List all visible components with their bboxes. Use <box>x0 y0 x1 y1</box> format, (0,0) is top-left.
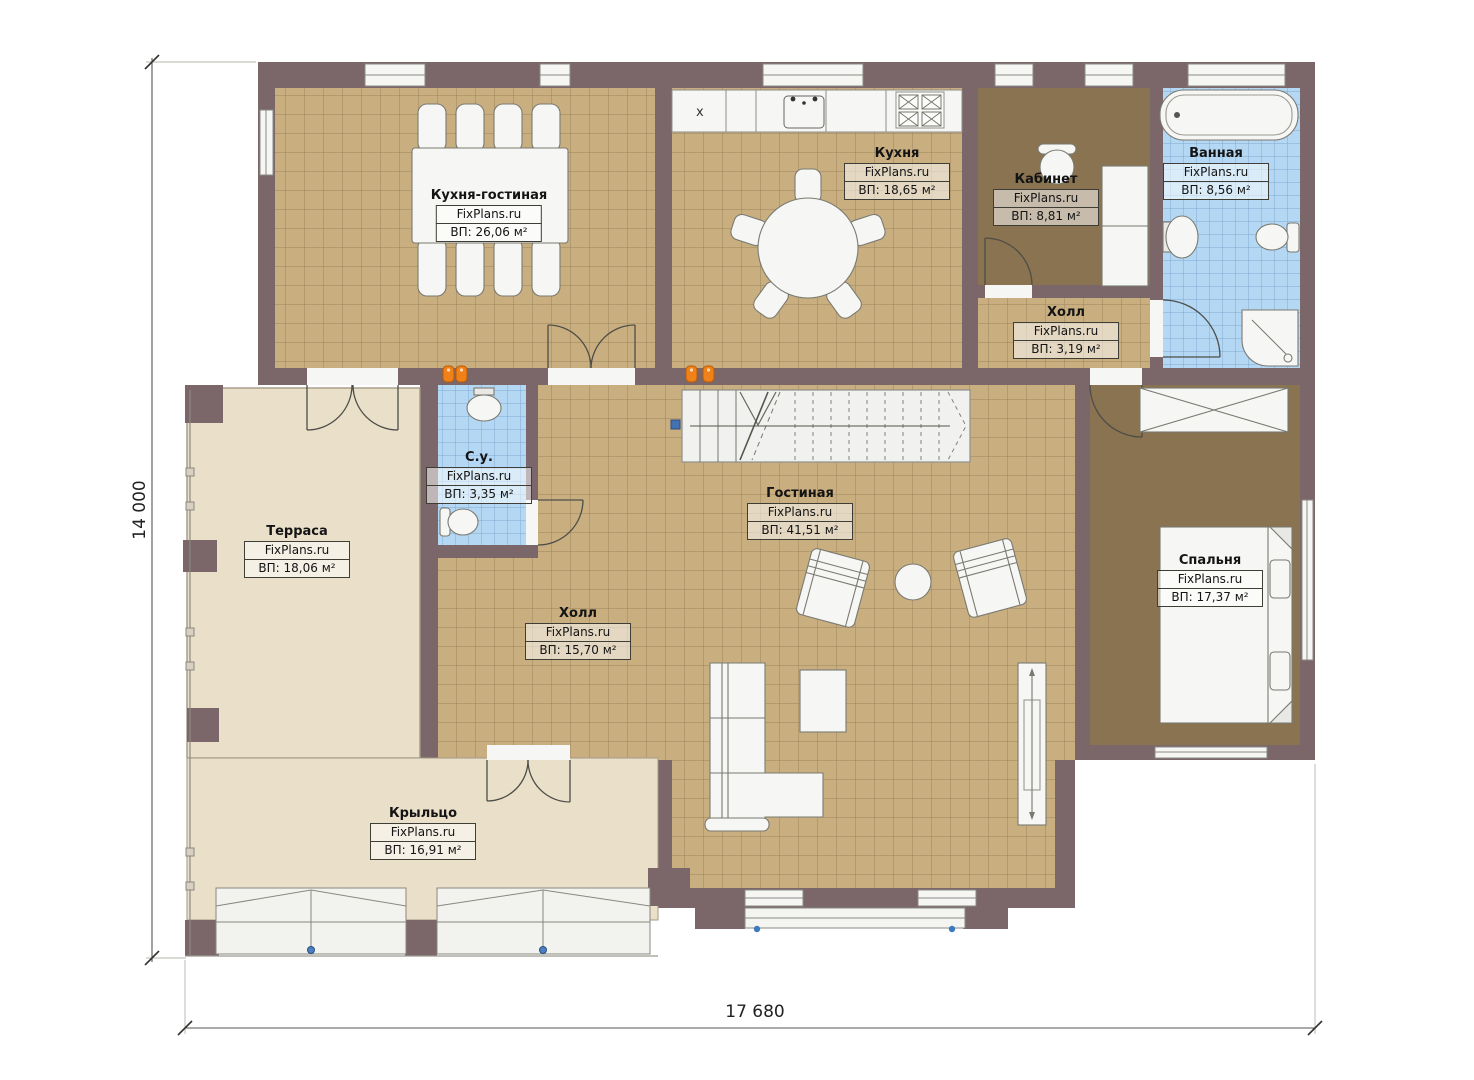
room-label-hall-top: Холл FixPlans.ru ВП: 3,19 м² <box>1013 305 1119 359</box>
brand-watermark: FixPlans.ru <box>244 541 350 560</box>
room-name: Кабинет <box>1015 172 1078 187</box>
wardrobe-icon <box>1140 388 1288 432</box>
bath-sink-icon <box>1163 216 1198 258</box>
coffee-table-icon <box>800 670 846 732</box>
shower-icon <box>1242 310 1298 366</box>
brand-watermark: FixPlans.ru <box>370 823 476 842</box>
room-area: ВП: 8,56 м² <box>1163 181 1269 200</box>
room-area: ВП: 17,37 м² <box>1157 588 1263 607</box>
counter-x-mark: x <box>696 105 704 120</box>
room-label-living: Гостиная FixPlans.ru ВП: 41,51 м² <box>747 486 853 540</box>
room-name: Спальня <box>1179 553 1241 568</box>
side-table-icon <box>895 564 931 600</box>
brand-watermark: FixPlans.ru <box>426 467 532 486</box>
brand-watermark: FixPlans.ru <box>436 205 542 224</box>
room-area: ВП: 26,06 м² <box>436 223 542 242</box>
room-label-kitchen-living: Кухня-гостиная FixPlans.ru ВП: 26,06 м² <box>431 188 547 242</box>
brand-watermark: FixPlans.ru <box>525 623 631 642</box>
room-label-porch: Крыльцо FixPlans.ru ВП: 16,91 м² <box>370 806 476 860</box>
wc-toilet-icon <box>440 508 478 536</box>
room-label-wc: С.у. FixPlans.ru ВП: 3,35 м² <box>426 450 532 504</box>
room-area: ВП: 16,91 м² <box>370 841 476 860</box>
room-name: Кухня <box>875 146 920 161</box>
room-area: ВП: 3,19 м² <box>1013 340 1119 359</box>
dimension-width-label: 17 680 <box>725 1002 784 1022</box>
brand-watermark: FixPlans.ru <box>1163 163 1269 182</box>
dimension-height-label: 14 000 <box>130 480 150 539</box>
round-dining-table <box>758 198 858 298</box>
room-name: Холл <box>1047 305 1085 320</box>
room-label-bedroom: Спальня FixPlans.ru ВП: 17,37 м² <box>1157 553 1263 607</box>
brand-watermark: FixPlans.ru <box>844 163 950 182</box>
room-label-cabinet: Кабинет FixPlans.ru ВП: 8,81 м² <box>993 172 1099 226</box>
room-name: Терраса <box>266 524 328 539</box>
floor-plan-page: x <box>0 0 1474 1080</box>
room-area: ВП: 18,65 м² <box>844 181 950 200</box>
brand-watermark: FixPlans.ru <box>1013 322 1119 341</box>
room-area: ВП: 18,06 м² <box>244 559 350 578</box>
brand-watermark: FixPlans.ru <box>993 189 1099 208</box>
room-area: ВП: 3,35 м² <box>426 485 532 504</box>
room-label-hall-main: Холл FixPlans.ru ВП: 15,70 м² <box>525 606 631 660</box>
room-name: Кухня-гостиная <box>431 188 547 203</box>
room-label-terrace: Терраса FixPlans.ru ВП: 18,06 м² <box>244 524 350 578</box>
toilet-icon <box>1256 223 1299 252</box>
stove-icon <box>896 92 944 128</box>
room-name: Крыльцо <box>389 806 457 821</box>
room-area: ВП: 41,51 м² <box>747 521 853 540</box>
room-area: ВП: 8,81 м² <box>993 207 1099 226</box>
brand-watermark: FixPlans.ru <box>747 503 853 522</box>
brand-watermark: FixPlans.ru <box>1157 570 1263 589</box>
room-name: Гостиная <box>766 486 834 501</box>
room-label-kitchen: Кухня FixPlans.ru ВП: 18,65 м² <box>844 146 950 200</box>
tv-unit-icon <box>1018 663 1046 825</box>
stairs <box>671 390 970 462</box>
room-name: С.у. <box>465 450 493 465</box>
room-label-bathroom: Ванная FixPlans.ru ВП: 8,56 м² <box>1163 146 1269 200</box>
room-name: Холл <box>559 606 597 621</box>
bathtub-icon <box>1160 90 1298 140</box>
room-name: Ванная <box>1189 146 1243 161</box>
kitchen-counter: x <box>672 90 962 132</box>
room-area: ВП: 15,70 м² <box>525 641 631 660</box>
